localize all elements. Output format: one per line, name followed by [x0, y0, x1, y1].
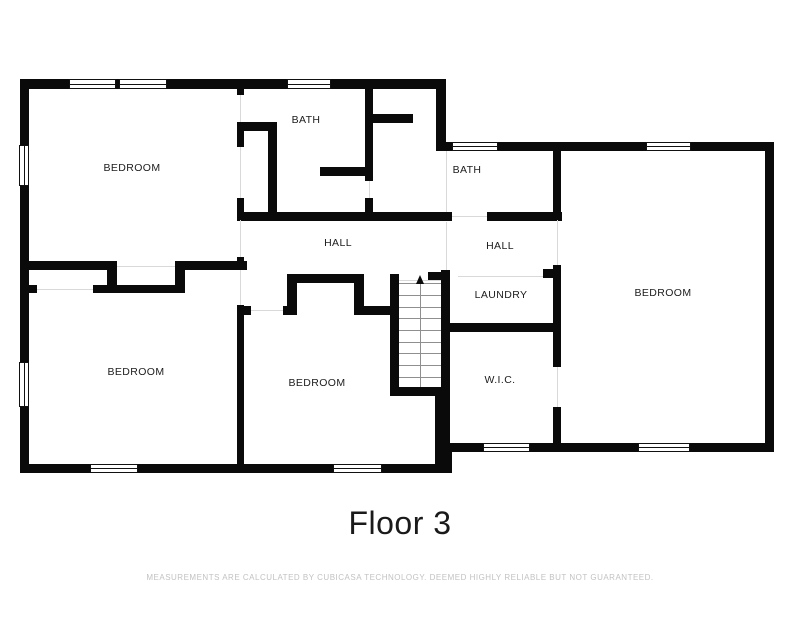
window-icon	[287, 79, 331, 89]
wall	[237, 305, 244, 465]
wall	[268, 122, 277, 214]
door-opening-line	[452, 216, 487, 217]
room-label-bedroom-top-left: BEDROOM	[103, 162, 160, 174]
room-label-laundry: LAUNDRY	[475, 289, 528, 301]
room-label-hall-right: HALL	[486, 240, 514, 252]
door-opening-line	[446, 222, 447, 270]
wall	[27, 285, 37, 293]
window-icon	[646, 142, 691, 151]
window-icon	[119, 79, 167, 89]
wall	[27, 261, 117, 270]
stair-direction-line	[420, 284, 421, 387]
door-opening-line	[37, 289, 93, 290]
wall	[441, 270, 450, 448]
wall	[553, 407, 561, 443]
door-opening-line	[446, 151, 447, 212]
door-opening-line	[240, 147, 241, 198]
wall	[237, 212, 452, 221]
wall	[354, 306, 394, 315]
wall	[553, 265, 561, 367]
room-label-bath-top: BATH	[292, 114, 321, 126]
wall	[441, 323, 557, 332]
door-opening-line	[458, 276, 543, 277]
door-opening-line	[240, 95, 241, 122]
wall	[365, 114, 413, 123]
door-opening-line	[117, 266, 175, 267]
room-label-hall-left: HALL	[324, 237, 352, 249]
window-icon	[483, 443, 530, 452]
wall	[287, 274, 364, 283]
wall	[553, 150, 561, 220]
window-icon	[19, 145, 29, 186]
floor-title: Floor 3	[0, 505, 800, 542]
wall	[320, 167, 373, 176]
window-icon	[638, 443, 690, 452]
door-opening-line	[251, 310, 283, 311]
door-opening-line	[240, 220, 241, 257]
wall	[237, 306, 251, 315]
wall	[487, 212, 562, 221]
wall	[398, 387, 444, 396]
stair-up-arrow-icon	[416, 275, 424, 284]
room-label-bedroom-right: BEDROOM	[634, 287, 691, 299]
wall	[365, 198, 373, 221]
door-opening-line	[557, 367, 558, 407]
room-label-bath-right: BATH	[453, 164, 482, 176]
window-icon	[333, 464, 382, 473]
door-opening-line	[240, 270, 241, 305]
disclaimer-text: MEASUREMENTS ARE CALCULATED BY CUBICASA …	[0, 573, 800, 582]
door-opening-line	[557, 220, 558, 265]
wall	[237, 85, 244, 95]
wall	[765, 142, 774, 452]
window-icon	[69, 79, 116, 89]
room-label-bedroom-bottom-middle: BEDROOM	[288, 377, 345, 389]
wall	[436, 79, 446, 151]
wall	[20, 79, 29, 473]
room-label-wic: W.I.C.	[485, 374, 516, 386]
window-icon	[90, 464, 138, 473]
wall	[390, 274, 399, 396]
wall	[93, 285, 185, 293]
room-label-bedroom-bottom-left: BEDROOM	[107, 366, 164, 378]
wall	[283, 306, 297, 315]
window-icon	[452, 142, 498, 151]
door-opening-line	[369, 181, 370, 198]
window-icon	[19, 362, 29, 407]
wall	[175, 261, 247, 270]
floor-plan-page: BEDROOMBATHBATHHALLHALLLAUNDRYW.I.C.BEDR…	[0, 0, 800, 631]
